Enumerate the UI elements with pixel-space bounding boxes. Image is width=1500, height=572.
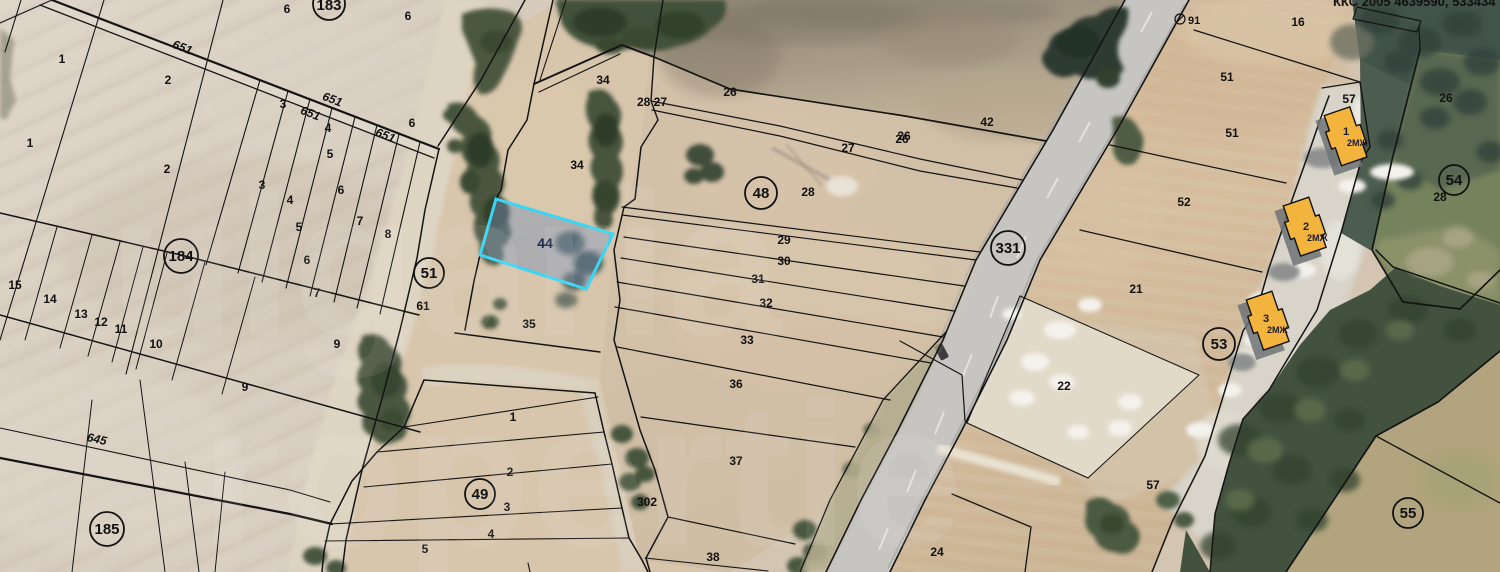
svg-text:42: 42 [980,115,994,129]
svg-text:51: 51 [1220,70,1234,84]
svg-text:13: 13 [74,307,88,321]
svg-text:331: 331 [995,240,1020,257]
svg-text:14: 14 [43,292,57,306]
svg-text:16: 16 [1291,15,1305,29]
svg-text:91: 91 [1188,15,1200,27]
svg-text:52: 52 [1177,195,1191,209]
svg-text:28: 28 [1433,190,1447,204]
svg-text:26: 26 [723,85,737,99]
svg-text:54: 54 [1446,172,1463,189]
svg-text:57: 57 [1342,92,1356,106]
svg-text:15: 15 [8,278,22,292]
svg-text:53: 53 [1211,336,1228,353]
svg-text:6: 6 [409,116,416,130]
svg-text:51: 51 [1225,126,1239,140]
svg-text:28: 28 [801,185,815,199]
svg-text:34: 34 [596,73,610,87]
svg-text:26: 26 [1439,91,1453,105]
svg-text:2: 2 [165,73,172,87]
svg-text:4: 4 [325,121,332,135]
svg-text:1: 1 [27,136,34,150]
svg-text:ulgaria: ulgaria [110,150,784,379]
svg-text:2МЖ: 2МЖ [1307,233,1329,243]
svg-text:28 27: 28 27 [637,95,667,109]
svg-text:1: 1 [1343,126,1349,138]
svg-text:183: 183 [316,0,341,14]
svg-text:22: 22 [1057,379,1071,393]
svg-text:57: 57 [1146,478,1160,492]
svg-text:3: 3 [1263,313,1269,325]
svg-text:6: 6 [284,2,291,16]
svg-text:ropertie: ropertie [200,360,963,572]
svg-text:6: 6 [405,9,412,23]
svg-text:2МЖ: 2МЖ [1267,325,1289,335]
svg-text:27: 27 [841,141,855,155]
svg-text:26: 26 [895,132,909,146]
svg-text:3: 3 [280,97,287,111]
svg-text:12: 12 [94,315,108,329]
svg-text:2МЖ: 2МЖ [1347,138,1369,148]
svg-text:1: 1 [59,52,66,66]
svg-text:21: 21 [1129,282,1143,296]
svg-text:ККС 2005 4639590, 533434: ККС 2005 4639590, 533434 [1333,0,1496,9]
svg-text:185: 185 [94,521,119,538]
svg-text:55: 55 [1400,505,1417,522]
svg-text:2: 2 [1303,221,1309,233]
